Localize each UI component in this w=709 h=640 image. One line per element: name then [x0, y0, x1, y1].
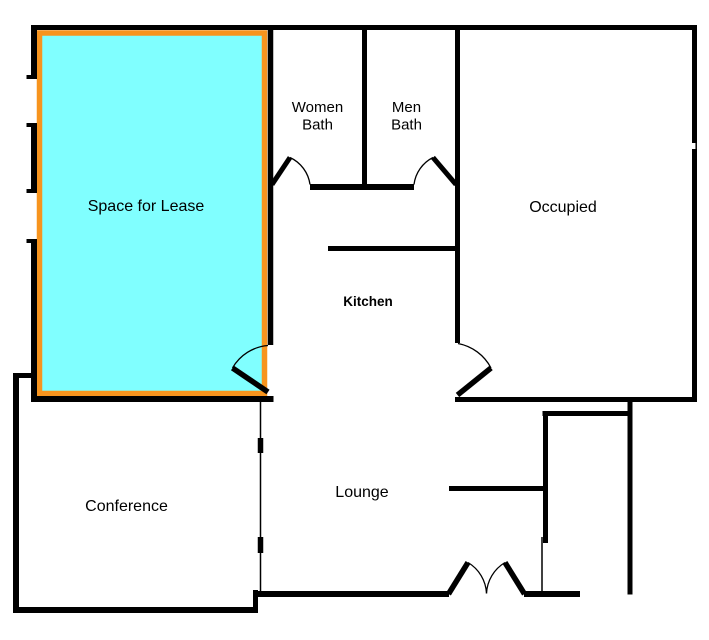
occupied-door-arc — [458, 344, 491, 369]
room-label-men-bath-line1: Men — [392, 99, 421, 116]
occupied-door-leaf — [458, 368, 492, 395]
men-bath-door-leaf — [433, 158, 456, 185]
room-label-women-bath-line1: Women — [292, 99, 343, 116]
entry-door-right-arc — [487, 563, 506, 594]
entry-door-left-leaf — [449, 563, 469, 595]
room-label-lease: Space for Lease — [88, 198, 205, 215]
entry-door-right-leaf — [505, 563, 525, 595]
women-bath-door-leaf — [272, 158, 290, 185]
women-bath-door-arc — [290, 158, 310, 185]
room-label-occupied: Occupied — [529, 199, 597, 216]
men-bath-door-arc — [414, 158, 433, 185]
floor-plan-canvas: Space for Lease Women Bath Men Bath Occu… — [0, 0, 709, 640]
room-label-women-bath-line2: Bath — [302, 117, 333, 134]
room-label-conference: Conference — [85, 498, 168, 515]
room-label-lounge: Lounge — [335, 484, 388, 501]
room-label-men-bath-line2: Bath — [391, 117, 422, 134]
room-label-kitchen: Kitchen — [343, 294, 393, 309]
entry-door-left-arc — [468, 563, 487, 594]
floor-plan-svg: Space for Lease Women Bath Men Bath Occu… — [0, 0, 709, 640]
doors — [233, 158, 525, 595]
